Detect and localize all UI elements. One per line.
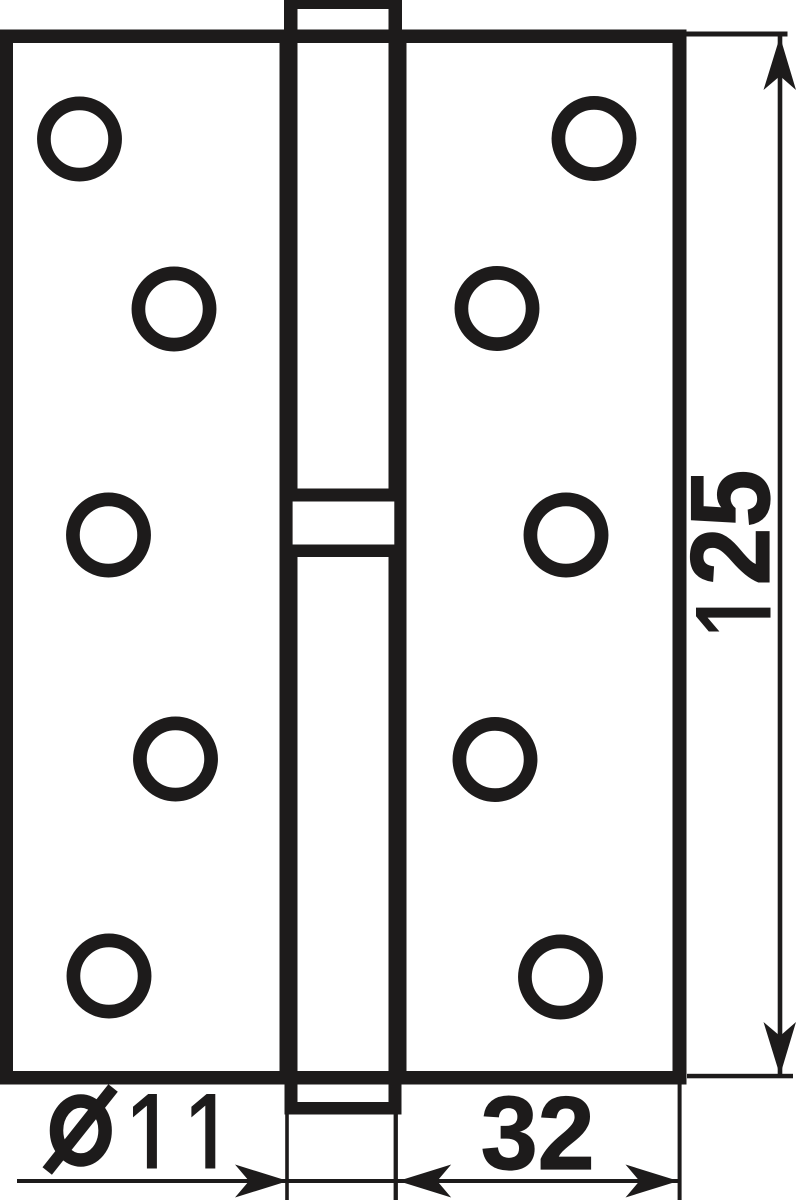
svg-text:25: 25 bbox=[668, 470, 793, 586]
svg-text:32: 32 bbox=[481, 1075, 595, 1191]
